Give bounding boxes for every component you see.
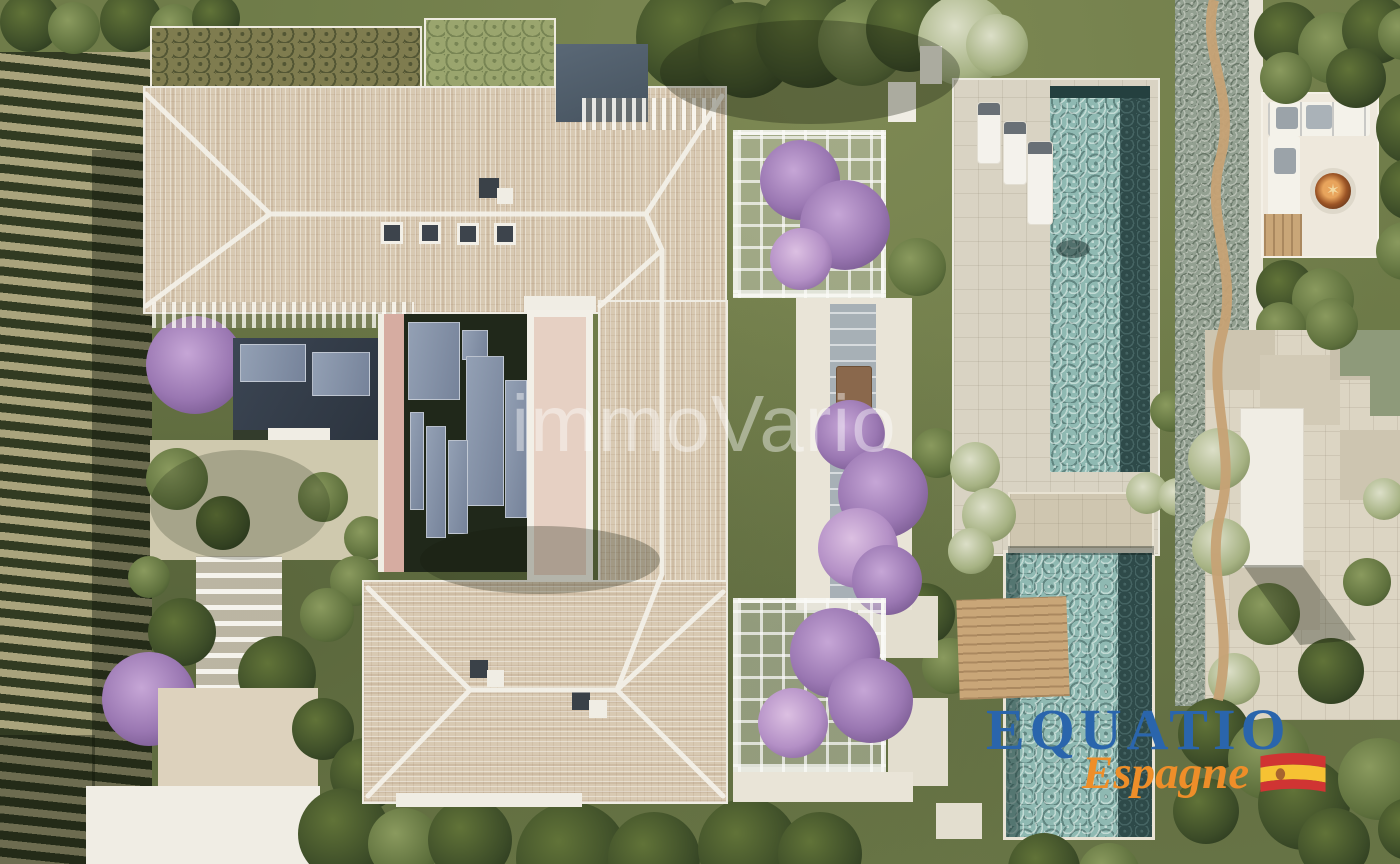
shrub	[48, 2, 100, 54]
sofa-cushion	[1276, 107, 1298, 129]
shrub	[146, 448, 208, 510]
chimney	[487, 670, 504, 687]
flowering-shrub	[1363, 478, 1400, 520]
chimney	[589, 700, 607, 718]
shrub	[1343, 558, 1391, 606]
roof-skylight	[419, 222, 441, 244]
solar-panel	[312, 352, 370, 396]
sun-lounger	[1027, 141, 1053, 225]
patio	[86, 786, 320, 864]
roof-eave-slats	[152, 302, 414, 328]
shrub	[1306, 298, 1358, 350]
pool-shadow	[1056, 240, 1090, 258]
shrub	[888, 238, 946, 296]
chimney	[572, 692, 590, 710]
vineyard-shadow	[0, 735, 95, 864]
terrace	[733, 772, 913, 802]
wood-deck	[956, 596, 1069, 700]
agave-plant	[950, 442, 1000, 492]
glass-panel	[408, 322, 460, 400]
sun-lounger	[1003, 121, 1027, 185]
glass-panel	[410, 412, 424, 510]
roof-eave	[396, 793, 582, 807]
hedge	[1326, 48, 1386, 108]
flowering-shrub	[1188, 428, 1250, 490]
chimney	[470, 660, 488, 678]
shrub	[1298, 638, 1364, 704]
stepping-stone	[888, 82, 916, 122]
logo-subtitle: Espagne	[1082, 746, 1249, 800]
pool-infinity-edge	[1050, 86, 1150, 98]
agave-plant	[948, 528, 994, 574]
pool-edge-dark	[1120, 88, 1150, 472]
spain-flag-icon	[1259, 752, 1327, 794]
deck-strip	[1264, 214, 1302, 256]
sofa-cushion	[1274, 148, 1296, 174]
bougainvillea	[770, 228, 832, 290]
chimney	[479, 178, 499, 198]
fire-pit: ✶	[1310, 168, 1356, 214]
roof-skylight	[457, 223, 479, 245]
solar-panel	[240, 344, 306, 382]
planting-bed	[424, 18, 556, 92]
paver	[1370, 376, 1400, 416]
sun-lounger	[977, 102, 1001, 164]
chimney	[497, 188, 513, 204]
stepping-stone	[920, 46, 942, 84]
pergola-slats	[582, 98, 716, 130]
fire-pit-flame-icon: ✶	[1326, 181, 1340, 201]
aerial-render: ✶	[0, 0, 1400, 864]
shrub	[128, 556, 170, 598]
planting-bed	[150, 26, 422, 92]
shrub	[196, 496, 250, 550]
glass-panel	[426, 426, 446, 538]
shrub	[298, 472, 348, 522]
sofa-cushion	[1306, 105, 1332, 129]
watermark: immoVario	[498, 378, 910, 470]
hedge	[1260, 52, 1312, 104]
glass-panel	[448, 440, 468, 534]
flowering-shrub	[966, 14, 1028, 76]
main-roof-lower-wing	[362, 580, 728, 804]
wall-band	[384, 314, 404, 572]
stepping-stone	[936, 803, 982, 839]
roof-skylight	[381, 222, 403, 244]
logo-subtitle-row: Espagne	[1082, 746, 1327, 800]
shrub	[300, 588, 354, 642]
roof-skylight	[494, 223, 516, 245]
flowering-shrub	[1192, 518, 1250, 576]
bougainvillea	[828, 658, 913, 743]
shrub	[1238, 583, 1300, 645]
tree-purple	[146, 316, 244, 414]
bougainvillea	[758, 688, 828, 758]
